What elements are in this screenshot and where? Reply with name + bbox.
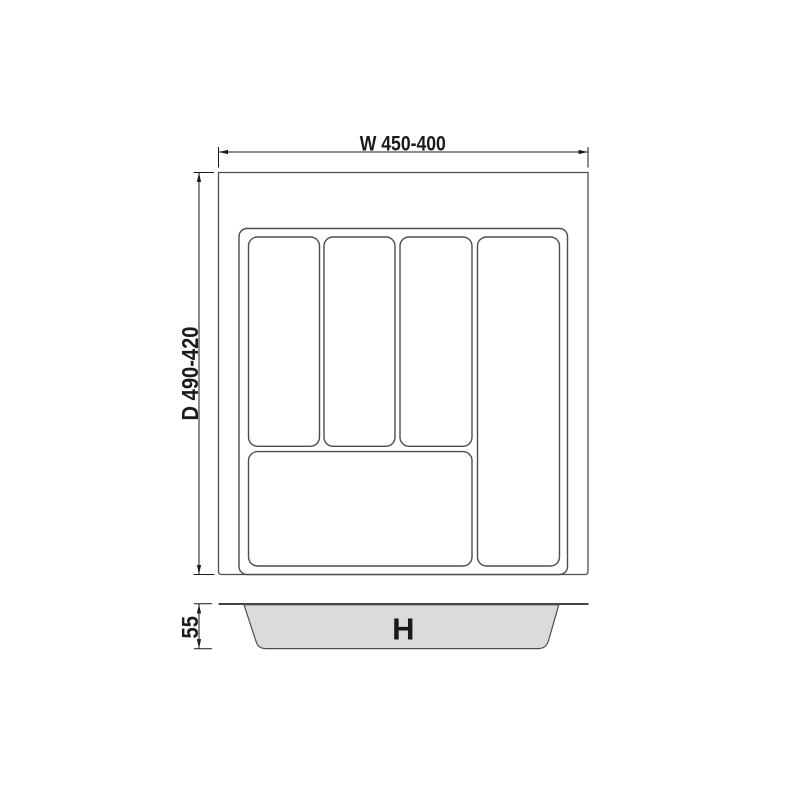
- svg-text:W 450-400: W 450-400: [360, 132, 446, 156]
- svg-text:D 490-420: D 490-420: [177, 327, 203, 421]
- svg-text:55: 55: [177, 616, 203, 639]
- svg-text:H: H: [392, 611, 414, 646]
